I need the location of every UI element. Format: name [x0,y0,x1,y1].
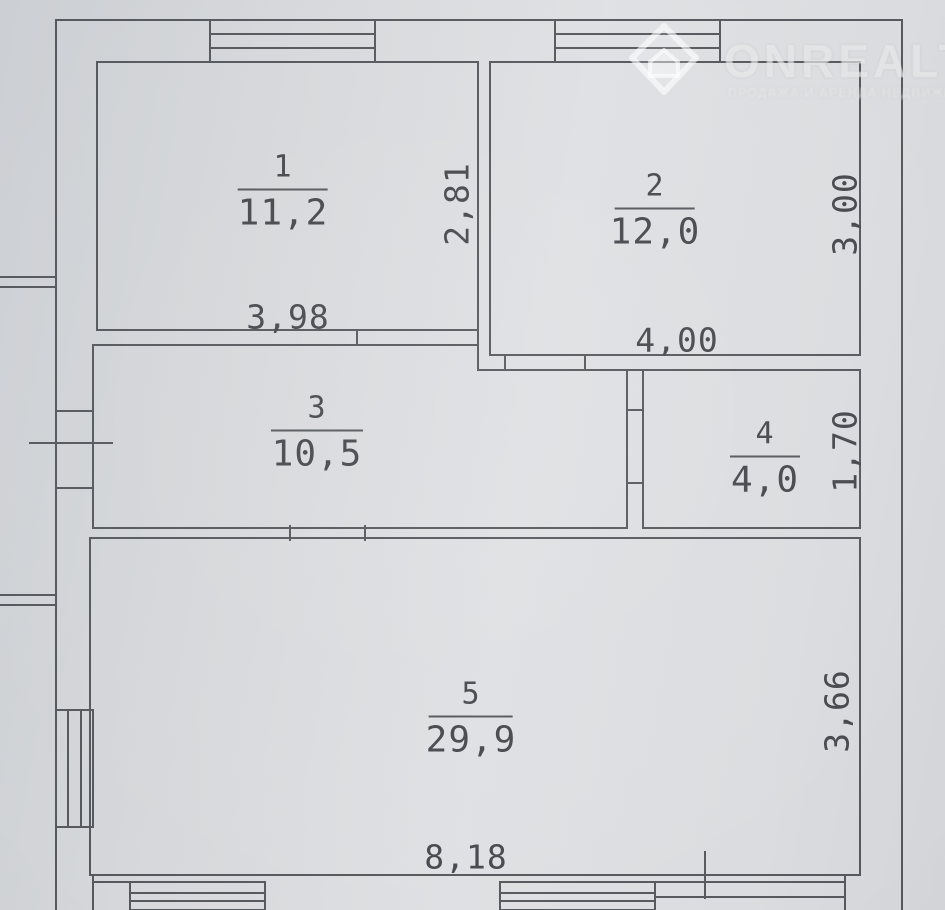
room-4-number: 4 [755,420,774,450]
room-3-area: 10,5 [272,437,363,473]
room-2-area: 12,0 [610,215,701,251]
dim-room4-height: 1,70 [829,409,862,492]
room-3-label: 3 10,5 [271,394,363,473]
room-5-number: 5 [461,680,480,710]
room-4-label: 4 4,0 [730,420,800,499]
room-1-area: 11,2 [238,196,329,232]
dim-room5-width: 8,18 [424,841,507,874]
room-3-divider [271,430,363,432]
dim-room1-width: 3,98 [246,301,329,334]
room-1-divider [238,189,328,191]
window-top-2 [555,20,720,62]
room-4-divider [730,456,800,458]
room-1-label: 1 11,2 [238,153,329,232]
floor-plan-drawing [0,0,945,910]
room-3-number: 3 [307,394,326,424]
room-5-area: 29,9 [426,723,517,759]
window-bottom-1 [130,882,265,910]
dim-room2-height: 3,00 [829,172,862,255]
room-4-area: 4,0 [731,463,799,499]
dim-room1-height: 2,81 [441,162,474,245]
window-left [56,710,93,827]
room-2-divider [615,208,695,210]
room-5-divider [429,716,513,718]
dim-room5-height: 3,66 [821,669,854,752]
dim-room2-width: 4,00 [635,324,718,357]
window-top-1 [210,20,375,62]
room-2-label: 2 12,0 [610,172,701,251]
floor-plan-photo: 1 11,2 2 12,0 3 10,5 4 4,0 5 29,9 3,98 2… [0,0,945,910]
window-bottom-2 [500,882,655,910]
room-2-number: 2 [645,172,664,202]
room-5-label: 5 29,9 [426,680,517,759]
room-1-number: 1 [273,153,292,183]
